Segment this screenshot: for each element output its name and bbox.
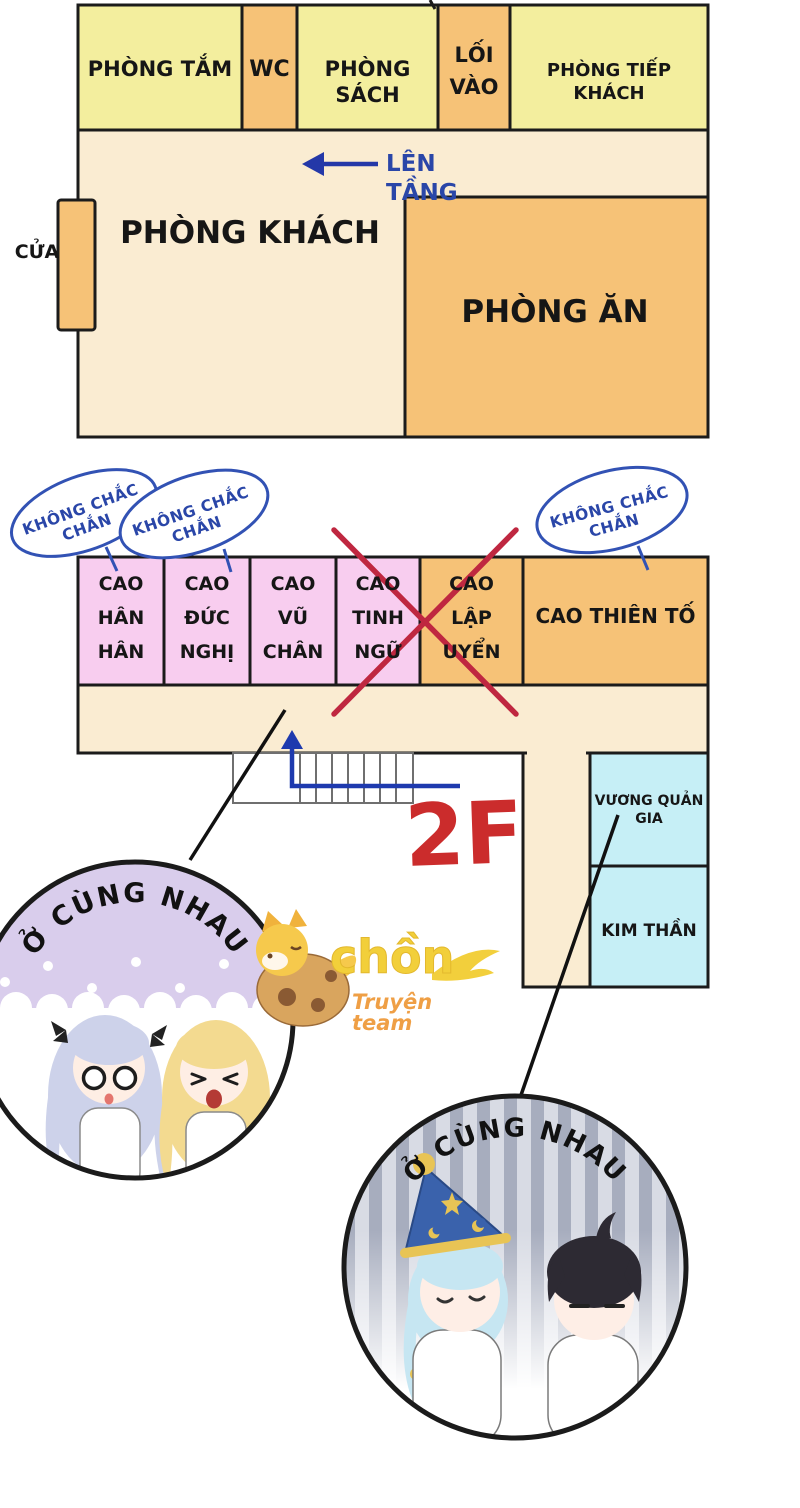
door-label: CỬA (14, 241, 60, 265)
corridor-junction-patch (527, 749, 586, 757)
watermark-subtitle: Truyện team (352, 992, 492, 1034)
shocked-eye-icon (84, 1068, 105, 1089)
watermark-name: chồn (330, 934, 460, 980)
room-label-cao-tinh-ngu: CAO TINH NGỮ (336, 567, 420, 670)
room-label-dining-room: PHÒNG ĂN (440, 293, 670, 332)
comic-page: Ở CÙNG NHAU (0, 0, 800, 1508)
stairs-icon (233, 753, 413, 803)
room-label-guest-room: PHÒNG TIẾP KHÁCH (512, 60, 706, 105)
floor2-hallway-shape (78, 685, 708, 753)
room-label-cao-vu-chan: CAO VŨ CHÂN (250, 567, 336, 670)
room-label-vuong-quan-gia: VƯƠNG QUẢN GIA (586, 793, 712, 828)
floor2-label: 2F (403, 790, 526, 880)
room-label-cao-thien-to: CAO THIÊN TỐ (523, 604, 708, 629)
room-label-living-room: PHÒNG KHÁCH (120, 214, 380, 253)
floor2-corridor-shape (523, 753, 590, 987)
upstairs-note: LÊN TẦNG (386, 150, 506, 208)
room-label-kim-than: KIM THẦN (590, 921, 708, 942)
room-label-cao-han-han: CAO HÂN HÂN (78, 567, 164, 670)
room-label-wc: WC (242, 56, 297, 84)
room-label-entrance: LỐI VÀO (444, 40, 504, 103)
room-label-cao-lap-uyen: CAO LẬP UYỂN (420, 567, 523, 670)
room-label-book-room: PHÒNG SÁCH (297, 56, 438, 109)
door-shape (58, 200, 95, 330)
room-label-bathroom: PHÒNG TẮM (78, 56, 242, 82)
shocked-eye-icon (115, 1068, 136, 1089)
room-label-cao-duc-nghi: CAO ĐỨC NGHỊ (164, 567, 250, 670)
